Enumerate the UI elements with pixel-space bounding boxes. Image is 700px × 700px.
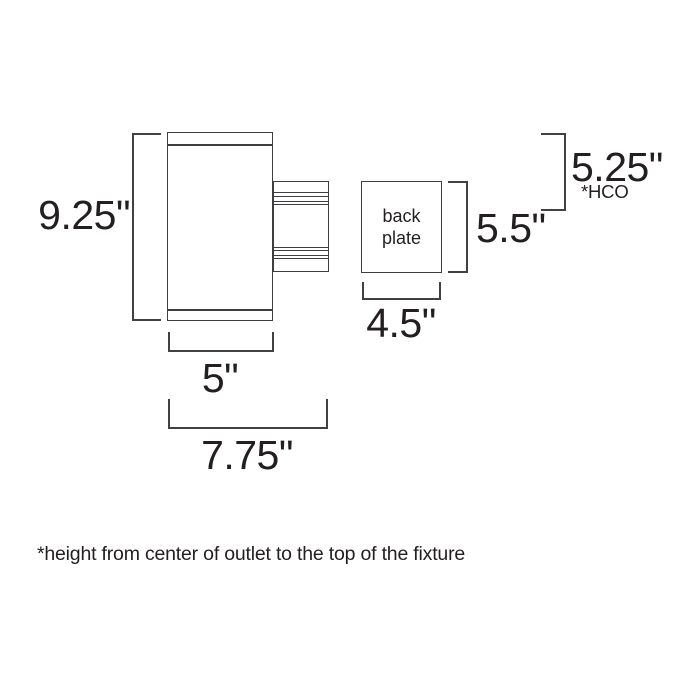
back-plate-outline: back plate (361, 181, 442, 273)
dimension-diagram: back plate 9.25" 5" 7.75" 4.5" 5.5" 5.25… (0, 0, 700, 700)
fixture-body-outline (167, 132, 273, 321)
bracket-overall-depth (168, 399, 328, 429)
arm-rib-band (274, 247, 328, 252)
mounting-arm-outline (273, 181, 329, 272)
arm-rib-band (274, 192, 328, 197)
fixture-bottom-cap-seam (168, 309, 272, 311)
fixture-top-cap-seam (168, 144, 272, 146)
footnote: *height from center of outlet to the top… (37, 543, 465, 566)
arm-rib-band (274, 255, 328, 259)
hco-abbrev-label: *HCO (581, 183, 629, 202)
bracket-backplate-width (362, 282, 441, 300)
overall-depth-label: 7.75" (167, 435, 327, 476)
back-plate-label-line1: back (382, 205, 421, 227)
bracket-hco (541, 133, 566, 212)
bracket-backplate-height (448, 181, 468, 273)
fixture-height-label: 9.25" (18, 195, 130, 236)
fixture-width-label: 5" (167, 358, 273, 399)
back-plate-label-line2: plate (382, 227, 421, 249)
backplate-height-label: 5.5" (476, 208, 546, 249)
arm-rib-band (274, 201, 328, 205)
bracket-fixture-width (168, 332, 274, 352)
back-plate-label: back plate (382, 205, 421, 249)
backplate-width-label: 4.5" (356, 303, 446, 344)
bracket-fixture-height (132, 133, 161, 321)
